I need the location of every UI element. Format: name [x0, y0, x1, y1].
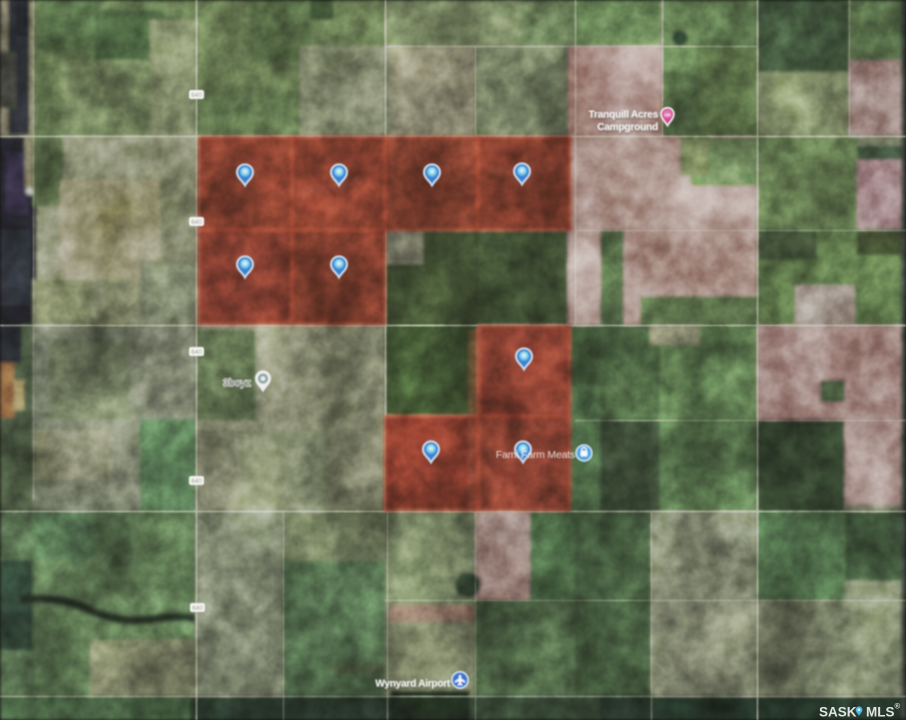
svg-text:®: ®: [895, 702, 901, 711]
svg-text:MLS: MLS: [866, 705, 895, 720]
svg-text:SASK: SASK: [819, 705, 857, 720]
